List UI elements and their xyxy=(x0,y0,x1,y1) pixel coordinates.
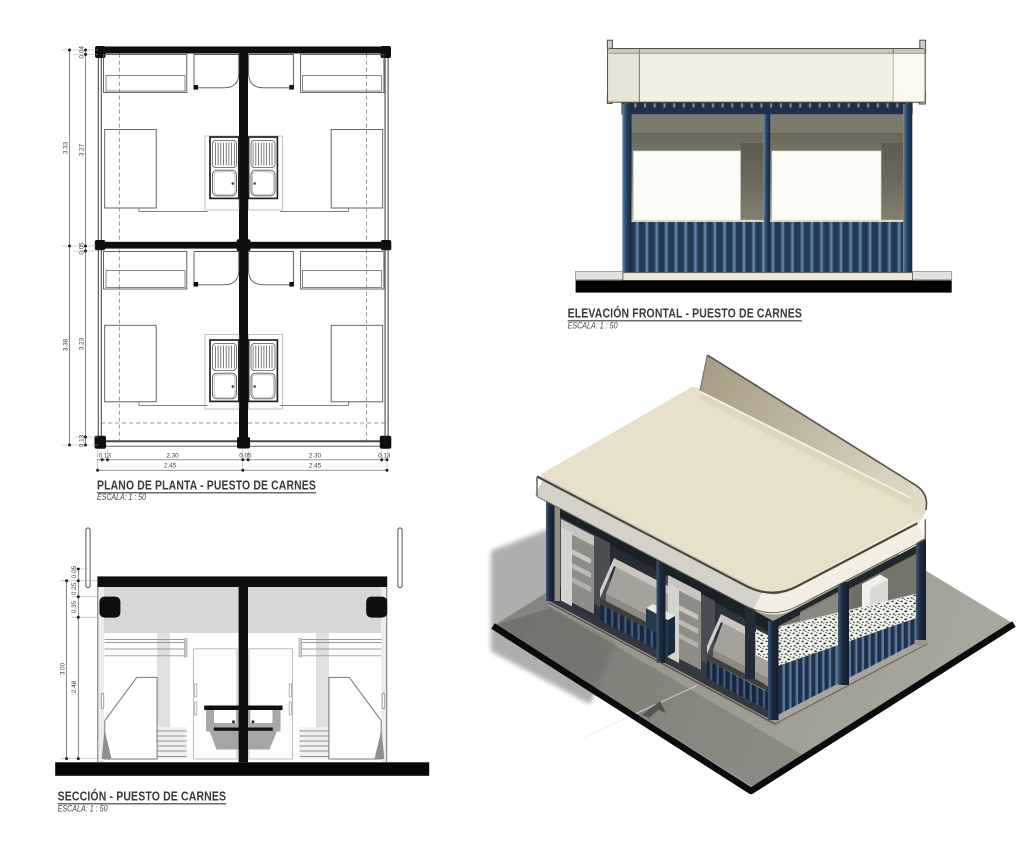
svg-text:0.05: 0.05 xyxy=(79,242,86,255)
svg-text:0.13: 0.13 xyxy=(99,452,112,459)
svg-text:2.30: 2.30 xyxy=(309,452,322,459)
svg-text:0.04: 0.04 xyxy=(79,46,86,59)
svg-text:ESCALA: 1 : 50: ESCALA: 1 : 50 xyxy=(568,321,619,331)
svg-text:3.00: 3.00 xyxy=(59,662,66,675)
svg-text:ELEVACIÓN FRONTAL - PUESTO DE: ELEVACIÓN FRONTAL - PUESTO DE CARNES xyxy=(568,306,802,321)
svg-text:PLANO DE PLANTA - PUESTO DE CA: PLANO DE PLANTA - PUESTO DE CARNES xyxy=(97,478,316,493)
svg-text:3.27: 3.27 xyxy=(79,143,86,156)
svg-text:3.38: 3.38 xyxy=(63,338,70,351)
svg-text:3.33: 3.33 xyxy=(63,141,70,154)
svg-text:2.30: 2.30 xyxy=(166,452,179,459)
svg-text:ESCALA: 1 : 50: ESCALA: 1 : 50 xyxy=(97,492,147,502)
svg-text:0.13: 0.13 xyxy=(79,434,86,447)
svg-text:0.13: 0.13 xyxy=(378,452,391,459)
svg-text:2.48: 2.48 xyxy=(71,680,78,693)
svg-text:SECCIÓN - PUESTO DE CARNES: SECCIÓN - PUESTO DE CARNES xyxy=(58,789,227,804)
svg-text:2.45: 2.45 xyxy=(164,463,177,470)
svg-text:3.23: 3.23 xyxy=(79,337,86,350)
svg-text:ESCALA: 1 : 50: ESCALA: 1 : 50 xyxy=(58,804,109,814)
svg-text:0.35: 0.35 xyxy=(71,600,78,613)
svg-text:0.05: 0.05 xyxy=(239,452,252,459)
svg-text:0.05: 0.05 xyxy=(71,565,78,578)
svg-text:0.25: 0.25 xyxy=(71,582,78,595)
svg-text:2.45: 2.45 xyxy=(309,463,322,470)
